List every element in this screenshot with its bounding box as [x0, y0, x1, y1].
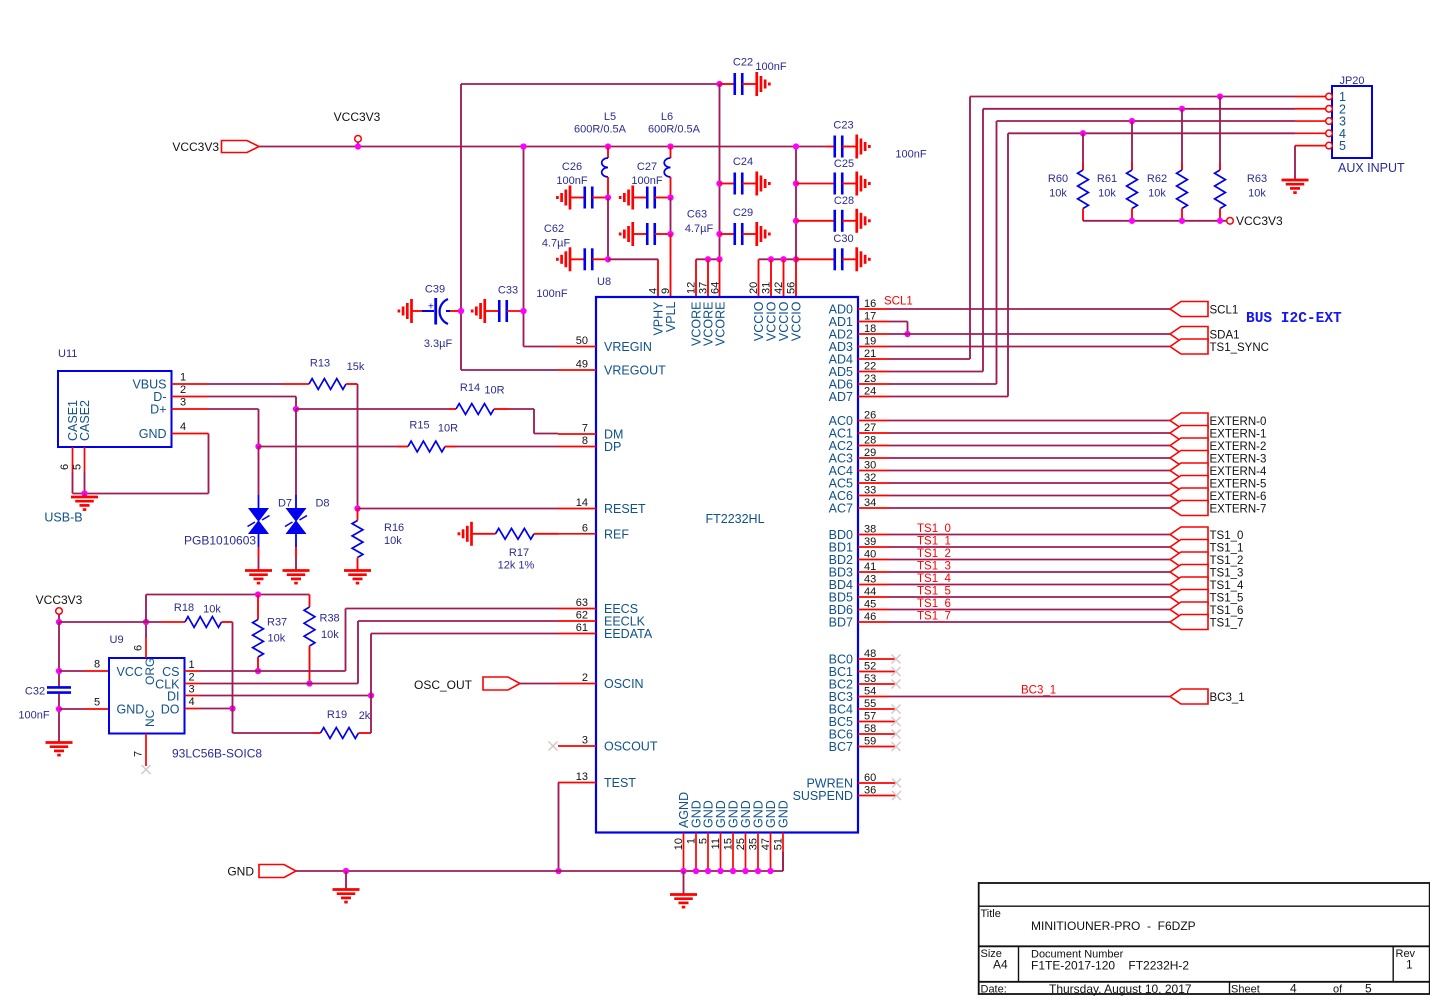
svg-text:12k 1%: 12k 1%	[498, 560, 535, 572]
svg-text:U8: U8	[597, 276, 611, 288]
svg-text:22: 22	[864, 361, 876, 373]
svg-text:53: 53	[864, 673, 876, 685]
svg-text:42: 42	[773, 282, 785, 294]
svg-text:7: 7	[133, 751, 145, 757]
svg-text:TS1_2: TS1_2	[917, 548, 951, 560]
svg-text:47: 47	[760, 838, 772, 850]
svg-text:R61: R61	[1097, 173, 1117, 185]
svg-text:10k: 10k	[1049, 188, 1067, 200]
svg-text:BUS I2C-EXT: BUS I2C-EXT	[1246, 311, 1342, 327]
svg-text:2: 2	[582, 672, 588, 684]
svg-text:2k: 2k	[359, 710, 371, 722]
svg-text:62: 62	[576, 610, 588, 622]
svg-text:39: 39	[864, 536, 876, 548]
svg-text:13: 13	[576, 771, 588, 783]
svg-text:R17: R17	[509, 547, 529, 559]
svg-text:46: 46	[864, 611, 876, 623]
svg-text:30: 30	[864, 460, 876, 472]
svg-text:REF: REF	[604, 527, 629, 541]
svg-text:R18: R18	[174, 602, 194, 614]
svg-text:D7: D7	[278, 498, 292, 510]
svg-text:48: 48	[864, 648, 876, 660]
svg-text:TS1_2: TS1_2	[1210, 555, 1244, 567]
svg-text:GND: GND	[139, 427, 167, 441]
svg-text:600R/0.5A: 600R/0.5A	[574, 124, 627, 136]
svg-text:100nF: 100nF	[631, 175, 662, 187]
svg-text:U9: U9	[110, 634, 124, 646]
svg-text:EXTERN-2: EXTERN-2	[1210, 441, 1267, 453]
svg-text:100nF: 100nF	[536, 288, 567, 300]
svg-text:DI: DI	[167, 690, 180, 704]
svg-text:38: 38	[864, 524, 876, 536]
svg-text:1: 1	[1406, 958, 1413, 972]
svg-text:5: 5	[698, 838, 710, 844]
svg-text:Sheet: Sheet	[1231, 984, 1260, 996]
svg-text:50: 50	[576, 335, 588, 347]
svg-text:5: 5	[1339, 139, 1346, 153]
svg-text:3.3µF: 3.3µF	[424, 338, 453, 350]
svg-text:EEDATA: EEDATA	[604, 627, 653, 641]
svg-text:10R: 10R	[484, 385, 504, 397]
svg-text:4: 4	[1290, 982, 1297, 996]
svg-text:GND: GND	[227, 865, 254, 879]
svg-text:100nF: 100nF	[895, 149, 926, 161]
svg-text:AC7: AC7	[829, 502, 853, 516]
svg-text:AD7: AD7	[829, 390, 853, 404]
svg-text:D+: D+	[150, 403, 166, 417]
svg-text:EXTERN-4: EXTERN-4	[1210, 466, 1267, 478]
svg-text:TS1_5: TS1_5	[1210, 593, 1244, 605]
svg-text:GND: GND	[777, 800, 791, 828]
svg-text:C30: C30	[833, 233, 853, 245]
svg-text:54: 54	[864, 686, 876, 698]
svg-text:3: 3	[180, 397, 186, 409]
svg-text:EXTERN-7: EXTERN-7	[1210, 504, 1267, 516]
svg-text:C32: C32	[25, 686, 45, 698]
svg-text:C23: C23	[833, 120, 853, 132]
svg-text:15: 15	[723, 838, 735, 850]
svg-text:8: 8	[94, 659, 100, 671]
svg-text:PGB1010603: PGB1010603	[184, 534, 256, 548]
svg-text:15k: 15k	[347, 361, 365, 373]
svg-text:EXTERN-6: EXTERN-6	[1210, 491, 1267, 503]
svg-text:TS1_0: TS1_0	[917, 523, 951, 535]
svg-text:Thursday, August 10, 2017: Thursday, August 10, 2017	[1049, 982, 1192, 996]
svg-text:1: 1	[686, 838, 698, 844]
svg-text:100nF: 100nF	[18, 710, 49, 722]
svg-text:TS1_7: TS1_7	[917, 611, 951, 623]
svg-text:GND: GND	[117, 703, 145, 717]
svg-text:63: 63	[576, 597, 588, 609]
svg-text:20: 20	[748, 282, 760, 294]
svg-text:R16: R16	[384, 522, 404, 534]
svg-text:TS1_3: TS1_3	[1210, 568, 1244, 580]
svg-text:VCC3V3: VCC3V3	[334, 110, 381, 124]
svg-text:C28: C28	[834, 195, 854, 207]
svg-text:100nF: 100nF	[556, 175, 587, 187]
svg-text:10k: 10k	[203, 604, 221, 616]
svg-text:NC: NC	[143, 709, 157, 727]
svg-text:AUX INPUT: AUX INPUT	[1338, 161, 1405, 175]
svg-text:C27: C27	[637, 161, 657, 173]
svg-text:VCCIO: VCCIO	[790, 301, 804, 341]
svg-text:TEST: TEST	[604, 776, 636, 790]
svg-text:14: 14	[576, 497, 588, 509]
svg-text:TS1_4: TS1_4	[917, 573, 951, 585]
svg-text:2: 2	[180, 384, 186, 396]
svg-text:8: 8	[582, 435, 588, 447]
svg-text:C26: C26	[562, 161, 582, 173]
svg-text:SCL1: SCL1	[884, 296, 913, 308]
svg-text:L6: L6	[661, 111, 673, 123]
svg-text:4: 4	[189, 696, 195, 708]
svg-text:27: 27	[864, 422, 876, 434]
svg-text:35: 35	[748, 838, 760, 850]
svg-text:26: 26	[864, 410, 876, 422]
svg-text:VCORE: VCORE	[714, 302, 728, 346]
svg-text:OSC_OUT: OSC_OUT	[414, 678, 473, 692]
svg-text:R62: R62	[1147, 173, 1167, 185]
svg-text:R63: R63	[1247, 173, 1267, 185]
svg-text:TS1_7: TS1_7	[1210, 618, 1244, 630]
svg-text:34: 34	[864, 497, 876, 509]
svg-text:10k: 10k	[1248, 188, 1266, 200]
svg-text:51: 51	[773, 838, 785, 850]
svg-text:64: 64	[710, 282, 722, 294]
svg-text:33: 33	[864, 485, 876, 497]
svg-text:VREGIN: VREGIN	[604, 340, 652, 354]
svg-text:+: +	[428, 302, 434, 313]
svg-text:C39: C39	[425, 284, 445, 296]
svg-text:L5: L5	[604, 111, 616, 123]
svg-text:VCC3V3: VCC3V3	[172, 140, 219, 154]
svg-text:55: 55	[864, 698, 876, 710]
svg-text:11: 11	[710, 838, 722, 849]
svg-text:TS1_5: TS1_5	[917, 586, 951, 598]
svg-text:44: 44	[864, 586, 876, 598]
svg-text:37: 37	[698, 282, 710, 294]
svg-text:VPLL: VPLL	[664, 301, 678, 332]
svg-text:31: 31	[761, 282, 773, 294]
svg-text:F1TE-2017-120 FT2232H-2: F1TE-2017-120 FT2232H-2	[1031, 959, 1189, 973]
svg-text:21: 21	[864, 348, 876, 360]
svg-text:Date:: Date:	[981, 984, 1007, 996]
svg-text:6: 6	[133, 645, 145, 651]
svg-text:49: 49	[576, 359, 588, 371]
svg-text:R38: R38	[320, 613, 340, 625]
svg-text:10: 10	[673, 838, 685, 850]
svg-text:TS1_6: TS1_6	[917, 598, 951, 610]
svg-text:4: 4	[180, 421, 186, 433]
svg-text:C22: C22	[733, 57, 753, 69]
svg-text:of: of	[1333, 984, 1343, 996]
svg-text:600R/0.5A: 600R/0.5A	[648, 124, 701, 136]
svg-text:EXTERN-1: EXTERN-1	[1210, 429, 1267, 441]
svg-text:VCC: VCC	[117, 665, 143, 679]
svg-text:28: 28	[864, 435, 876, 447]
svg-text:EXTERN-5: EXTERN-5	[1210, 479, 1267, 491]
svg-text:36: 36	[864, 785, 876, 797]
svg-text:1: 1	[189, 659, 195, 671]
svg-text:56: 56	[786, 282, 798, 294]
svg-text:C62: C62	[544, 223, 564, 235]
svg-text:D8: D8	[315, 498, 329, 510]
svg-text:BC3_1: BC3_1	[1210, 692, 1245, 704]
svg-text:CASE2: CASE2	[78, 400, 92, 441]
svg-text:TS1_0: TS1_0	[1210, 530, 1244, 542]
svg-text:1: 1	[180, 372, 186, 384]
svg-text:58: 58	[864, 723, 876, 735]
svg-text:BC7: BC7	[829, 740, 853, 754]
svg-text:MINITIOUNER-PRO - F6DZP: MINITIOUNER-PRO - F6DZP	[1031, 919, 1196, 933]
svg-text:SDA1: SDA1	[1210, 330, 1240, 342]
svg-text:A4: A4	[993, 958, 1008, 972]
svg-text:19: 19	[864, 336, 876, 348]
svg-text:EXTERN-3: EXTERN-3	[1210, 454, 1267, 466]
svg-text:16: 16	[864, 298, 876, 310]
svg-text:2: 2	[189, 672, 195, 684]
svg-text:TS1_3: TS1_3	[917, 561, 951, 573]
svg-text:9: 9	[660, 288, 672, 294]
svg-text:3: 3	[189, 684, 195, 696]
svg-text:32: 32	[864, 472, 876, 484]
svg-text:RESET: RESET	[604, 502, 646, 516]
svg-text:R60: R60	[1048, 173, 1068, 185]
svg-text:DP: DP	[604, 440, 621, 454]
svg-text:5: 5	[1365, 982, 1372, 996]
svg-text:12: 12	[686, 282, 698, 294]
svg-text:VCC3V3: VCC3V3	[36, 593, 83, 607]
svg-text:45: 45	[864, 599, 876, 611]
svg-text:R14: R14	[460, 382, 480, 394]
svg-text:TS1_4: TS1_4	[1210, 580, 1244, 592]
svg-text:25: 25	[735, 838, 747, 850]
svg-text:SUSPEND: SUSPEND	[793, 789, 853, 803]
svg-text:60: 60	[864, 772, 876, 784]
svg-text:TS1_6: TS1_6	[1210, 605, 1244, 617]
svg-text:10k: 10k	[1098, 188, 1116, 200]
svg-text:6: 6	[582, 522, 588, 534]
svg-text:10R: 10R	[438, 423, 458, 435]
svg-text:C63: C63	[687, 209, 707, 221]
svg-text:4.7µF: 4.7µF	[685, 223, 714, 235]
svg-text:29: 29	[864, 447, 876, 459]
svg-text:USB-B: USB-B	[44, 511, 82, 525]
svg-text:C24: C24	[733, 156, 753, 168]
svg-text:4: 4	[648, 288, 660, 294]
svg-text:18: 18	[864, 323, 876, 335]
svg-text:ORG: ORG	[143, 658, 157, 685]
svg-text:41: 41	[864, 561, 876, 573]
svg-text:VCC3V3: VCC3V3	[1236, 214, 1283, 228]
svg-text:10k: 10k	[1148, 188, 1166, 200]
svg-text:5: 5	[94, 697, 100, 709]
svg-text:59: 59	[864, 736, 876, 748]
svg-text:100nF: 100nF	[755, 61, 786, 73]
svg-text:7: 7	[582, 423, 588, 435]
svg-text:C25: C25	[834, 158, 854, 170]
svg-text:23: 23	[864, 373, 876, 385]
svg-text:R15: R15	[409, 420, 429, 432]
svg-text:OSCIN: OSCIN	[604, 677, 644, 691]
svg-text:EXTERN-0: EXTERN-0	[1210, 416, 1267, 428]
svg-text:OSCOUT: OSCOUT	[604, 740, 658, 754]
svg-text:SCL1: SCL1	[1210, 305, 1239, 317]
svg-text:C33: C33	[498, 285, 518, 297]
svg-text:VREGOUT: VREGOUT	[604, 364, 666, 378]
svg-text:5: 5	[72, 464, 84, 470]
svg-text:U11: U11	[58, 348, 77, 360]
svg-text:FT2232HL: FT2232HL	[705, 512, 764, 526]
svg-text:R37: R37	[267, 617, 287, 629]
svg-text:10k: 10k	[384, 535, 402, 547]
svg-text:C29: C29	[733, 207, 753, 219]
svg-text:52: 52	[864, 661, 876, 673]
svg-text:17: 17	[864, 311, 876, 323]
svg-text:6: 6	[59, 464, 71, 470]
svg-text:3: 3	[582, 735, 588, 747]
svg-text:57: 57	[864, 711, 876, 723]
svg-text:4.7µF: 4.7µF	[542, 238, 571, 250]
svg-text:TS1_SYNC: TS1_SYNC	[1210, 342, 1269, 354]
svg-text:DO: DO	[161, 703, 180, 717]
svg-text:61: 61	[576, 622, 588, 634]
svg-text:R13: R13	[310, 358, 330, 370]
svg-text:BC3_1: BC3_1	[1021, 685, 1056, 697]
svg-text:TS1_1: TS1_1	[917, 536, 951, 548]
svg-text:10k: 10k	[268, 633, 286, 645]
svg-text:Title: Title	[981, 908, 1001, 920]
svg-text:93LC56B-SOIC8: 93LC56B-SOIC8	[172, 747, 262, 761]
svg-text:43: 43	[864, 574, 876, 586]
svg-text:24: 24	[864, 386, 876, 398]
svg-text:40: 40	[864, 549, 876, 561]
svg-text:10k: 10k	[321, 629, 339, 641]
svg-text:TS1_1: TS1_1	[1210, 543, 1244, 555]
svg-text:BD7: BD7	[829, 616, 853, 630]
svg-text:R19: R19	[327, 709, 347, 721]
